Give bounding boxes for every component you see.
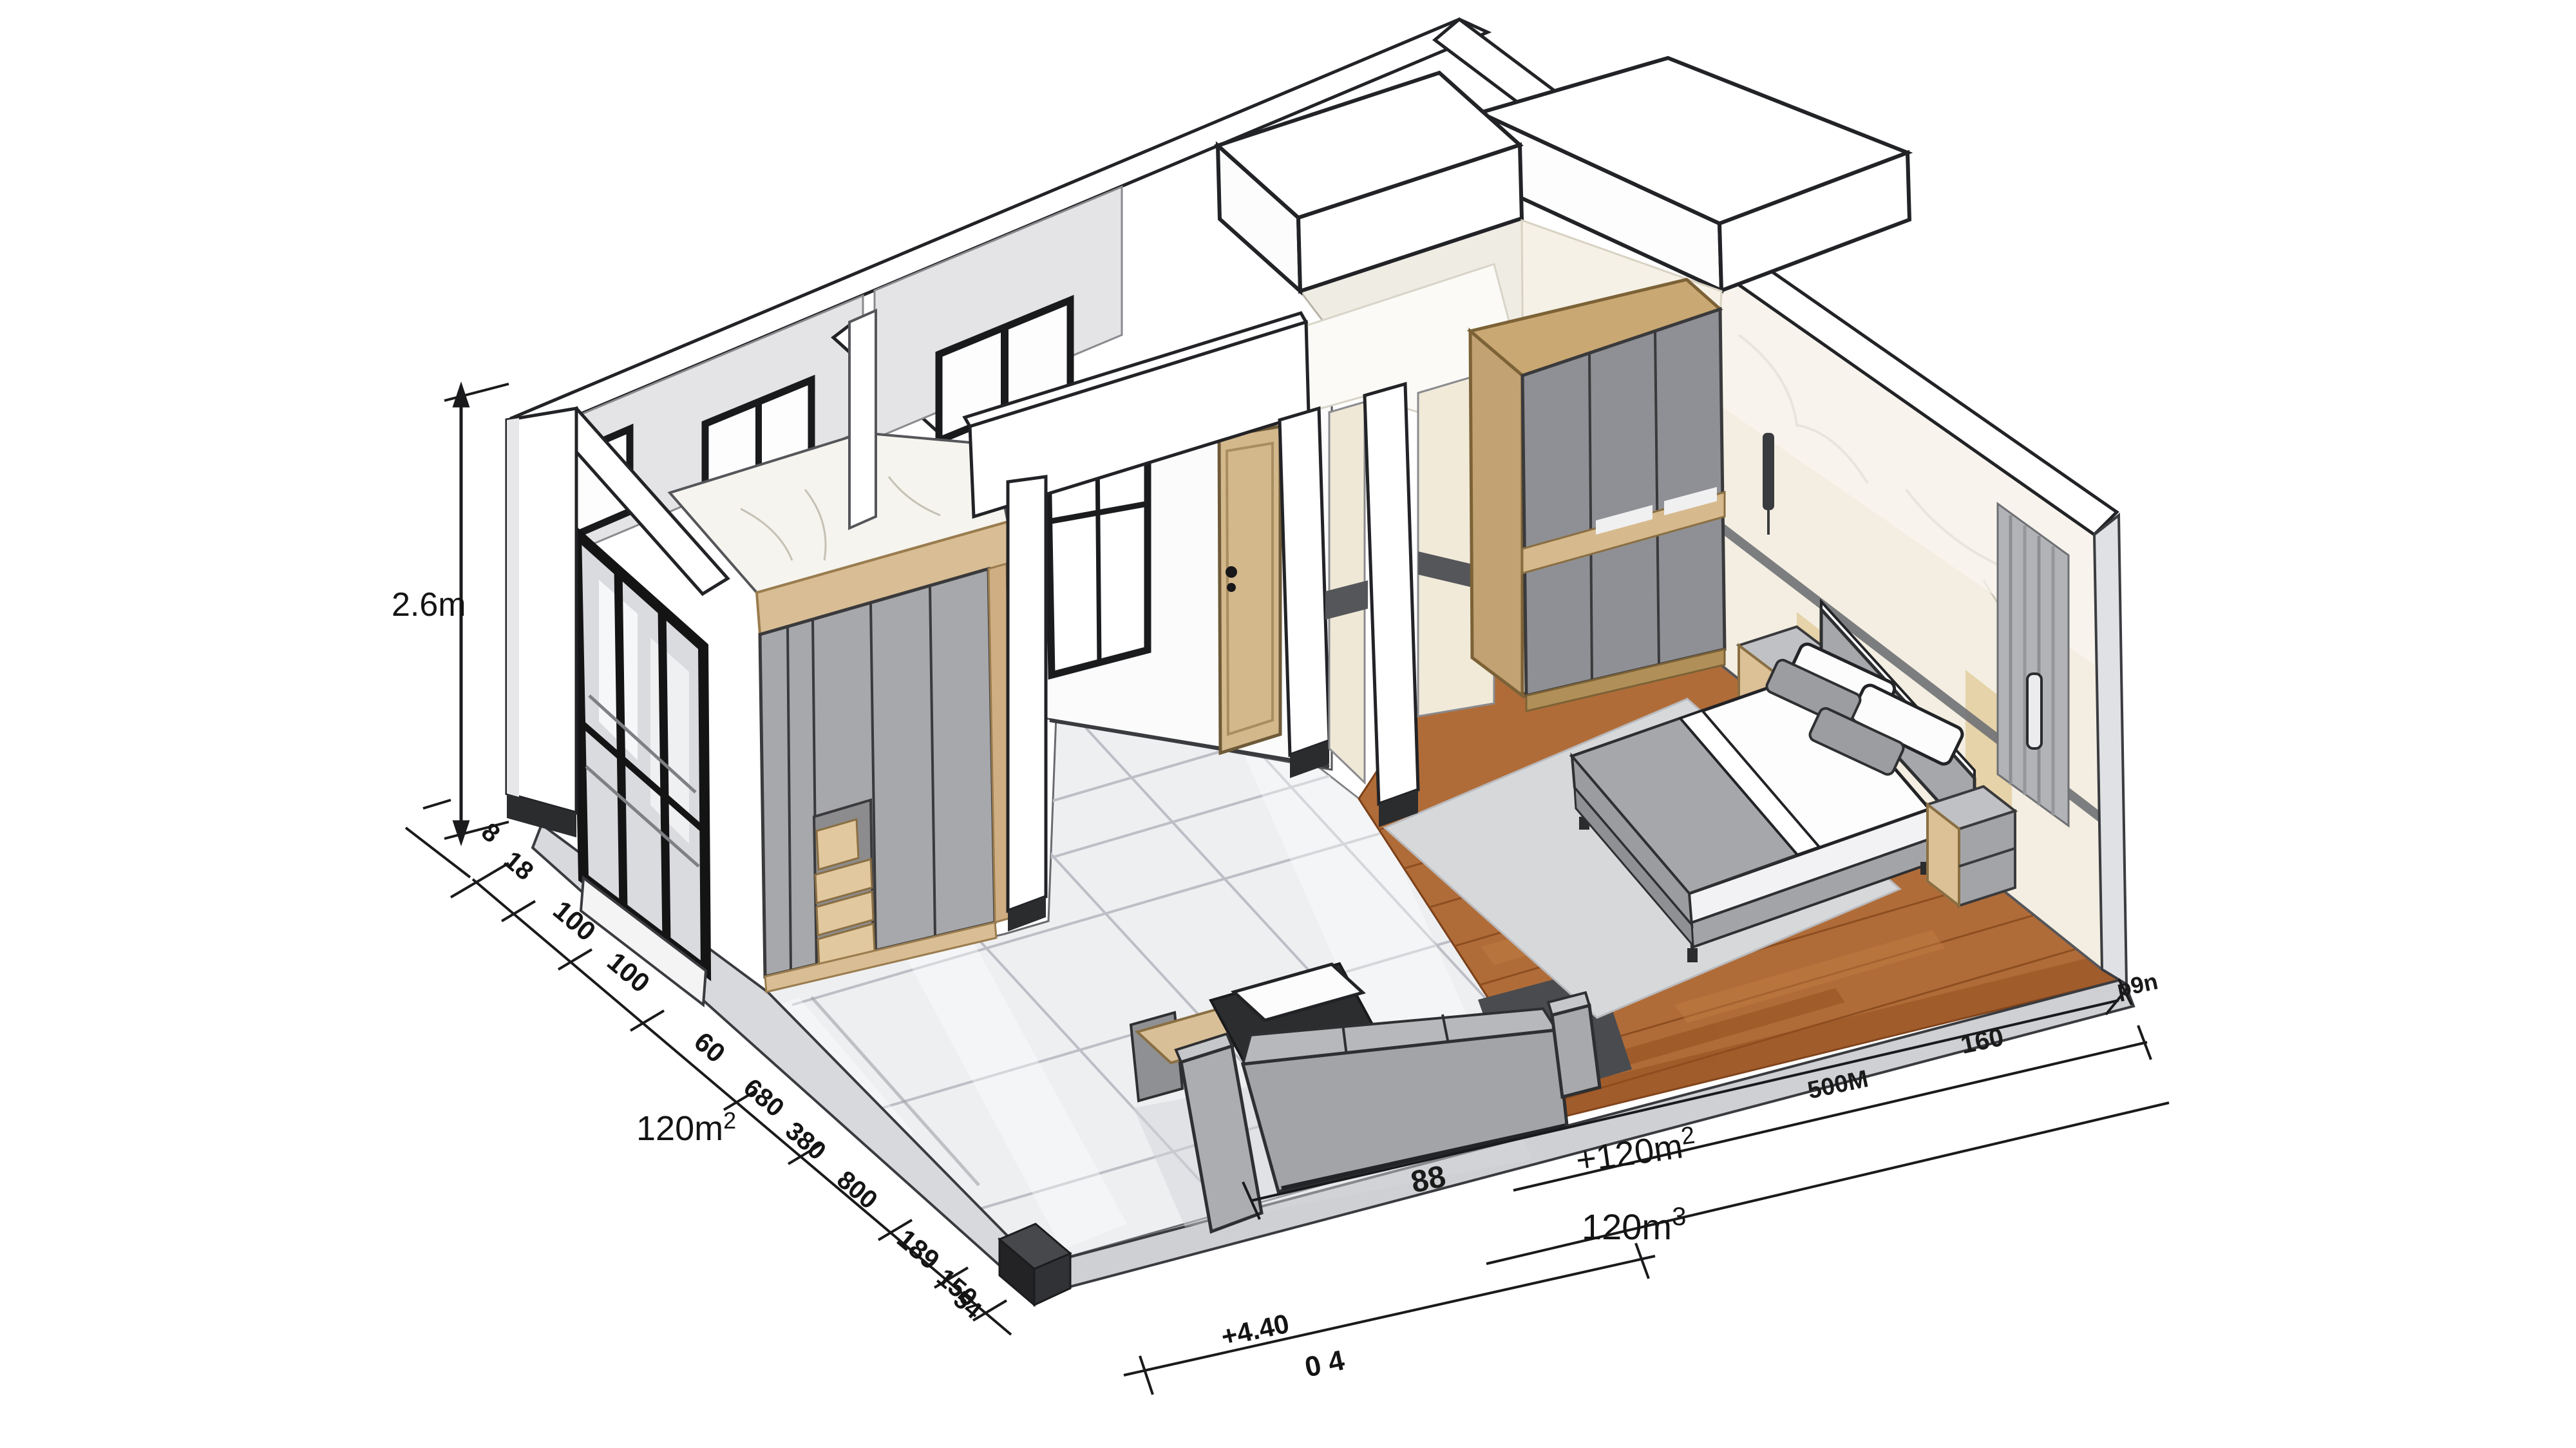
svg-text:88: 88 bbox=[1408, 1159, 1448, 1200]
svg-text:120m2: 120m2 bbox=[636, 1107, 736, 1148]
svg-text:2.6m: 2.6m bbox=[392, 586, 466, 624]
svg-text:120m3: 120m3 bbox=[1582, 1203, 1686, 1247]
